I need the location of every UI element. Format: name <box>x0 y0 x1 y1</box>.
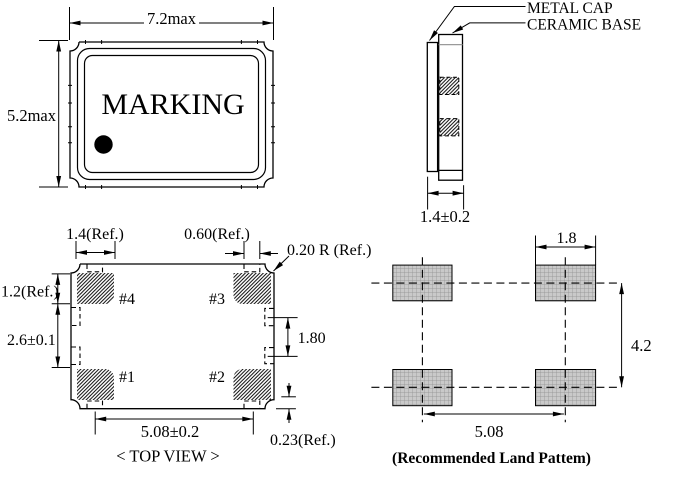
svg-text:5.08: 5.08 <box>475 422 504 441</box>
svg-text:4.2: 4.2 <box>631 336 652 355</box>
svg-text:1.4(Ref.): 1.4(Ref.) <box>66 226 124 243</box>
svg-text:CERAMIC BASE: CERAMIC BASE <box>527 17 641 34</box>
svg-text:5.2max: 5.2max <box>7 106 57 125</box>
svg-text:#4: #4 <box>119 291 135 308</box>
svg-text:0.23(Ref.): 0.23(Ref.) <box>270 432 336 449</box>
svg-text:1.8: 1.8 <box>557 230 577 247</box>
svg-text:0.60(Ref.): 0.60(Ref.) <box>184 226 250 243</box>
svg-text:MARKING: MARKING <box>101 88 244 121</box>
svg-text:2.6±0.1: 2.6±0.1 <box>7 332 56 349</box>
svg-text:#2: #2 <box>209 369 225 386</box>
svg-text:1.4±0.2: 1.4±0.2 <box>420 207 470 226</box>
svg-text:#3: #3 <box>209 291 225 308</box>
svg-text:1.80: 1.80 <box>298 330 326 347</box>
svg-text:5.08±0.2: 5.08±0.2 <box>141 422 200 441</box>
svg-text:#1: #1 <box>119 369 135 386</box>
svg-text:< TOP VIEW >: < TOP VIEW > <box>116 447 219 466</box>
svg-text:0.20 R (Ref.): 0.20 R (Ref.) <box>287 242 371 259</box>
svg-text:7.2max: 7.2max <box>147 9 197 28</box>
svg-text:1.2(Ref.): 1.2(Ref.) <box>1 284 59 301</box>
svg-text:METAL CAP: METAL CAP <box>527 0 613 17</box>
svg-text:(Recommended Land Pattem): (Recommended Land Pattem) <box>392 450 591 467</box>
